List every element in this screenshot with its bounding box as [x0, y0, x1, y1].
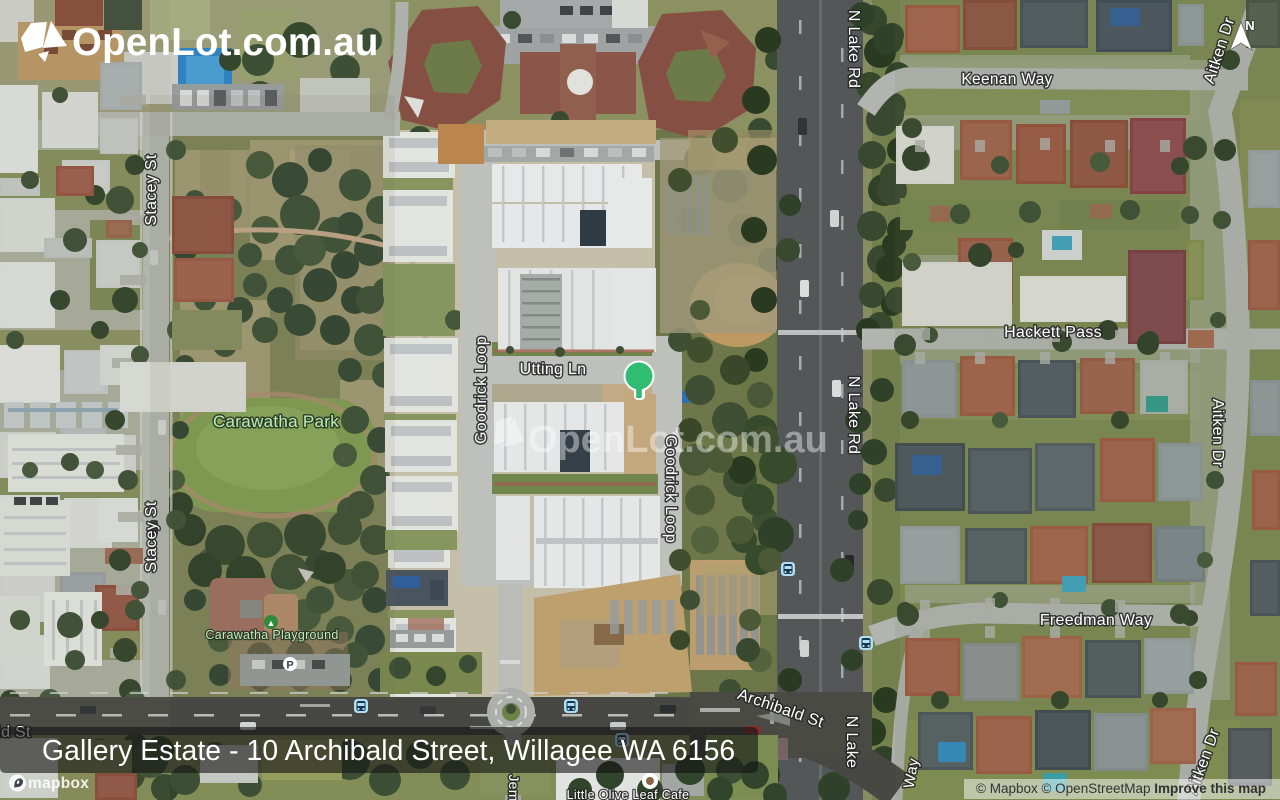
svg-text:N Lake: N Lake	[843, 716, 860, 769]
svg-text:Aitken Dr: Aitken Dr	[1209, 399, 1226, 468]
svg-text:N Lake Rd: N Lake Rd	[845, 10, 862, 88]
svg-text:Freedman Way: Freedman Way	[1040, 612, 1152, 629]
svg-text:N Lake Rd: N Lake Rd	[845, 376, 862, 454]
svg-text:mapbox: mapbox	[28, 775, 89, 792]
svg-text:▲: ▲	[267, 618, 276, 628]
svg-text:Little Olive Leaf Cafe: Little Olive Leaf Cafe	[567, 788, 690, 800]
svg-text:Jem: Jem	[506, 774, 522, 800]
svg-text:N: N	[1245, 18, 1254, 33]
svg-text:P: P	[286, 660, 293, 672]
svg-text:Keenan Way: Keenan Way	[961, 71, 1052, 88]
svg-text:Utting Ln: Utting Ln	[520, 361, 587, 378]
svg-text:Stacey St: Stacey St	[143, 501, 160, 572]
svg-text:Hackett Pass: Hackett Pass	[1004, 324, 1102, 341]
svg-text:Carawatha Park: Carawatha Park	[213, 412, 339, 431]
svg-text:Stacey St: Stacey St	[143, 154, 160, 225]
svg-text:Carawatha Playground: Carawatha Playground	[205, 628, 338, 642]
svg-text:© Mapbox © OpenStreetMap Impro: © Mapbox © OpenStreetMap Improve this ma…	[976, 781, 1266, 796]
svg-text:OpenLot.com.au: OpenLot.com.au	[72, 21, 379, 64]
svg-text:Gallery Estate - 10 Archibald: Gallery Estate - 10 Archibald Street, Wi…	[42, 734, 735, 766]
svg-text:Goodrick Loop: Goodrick Loop	[473, 336, 490, 444]
svg-text:Goodrick Loop: Goodrick Loop	[662, 435, 679, 543]
